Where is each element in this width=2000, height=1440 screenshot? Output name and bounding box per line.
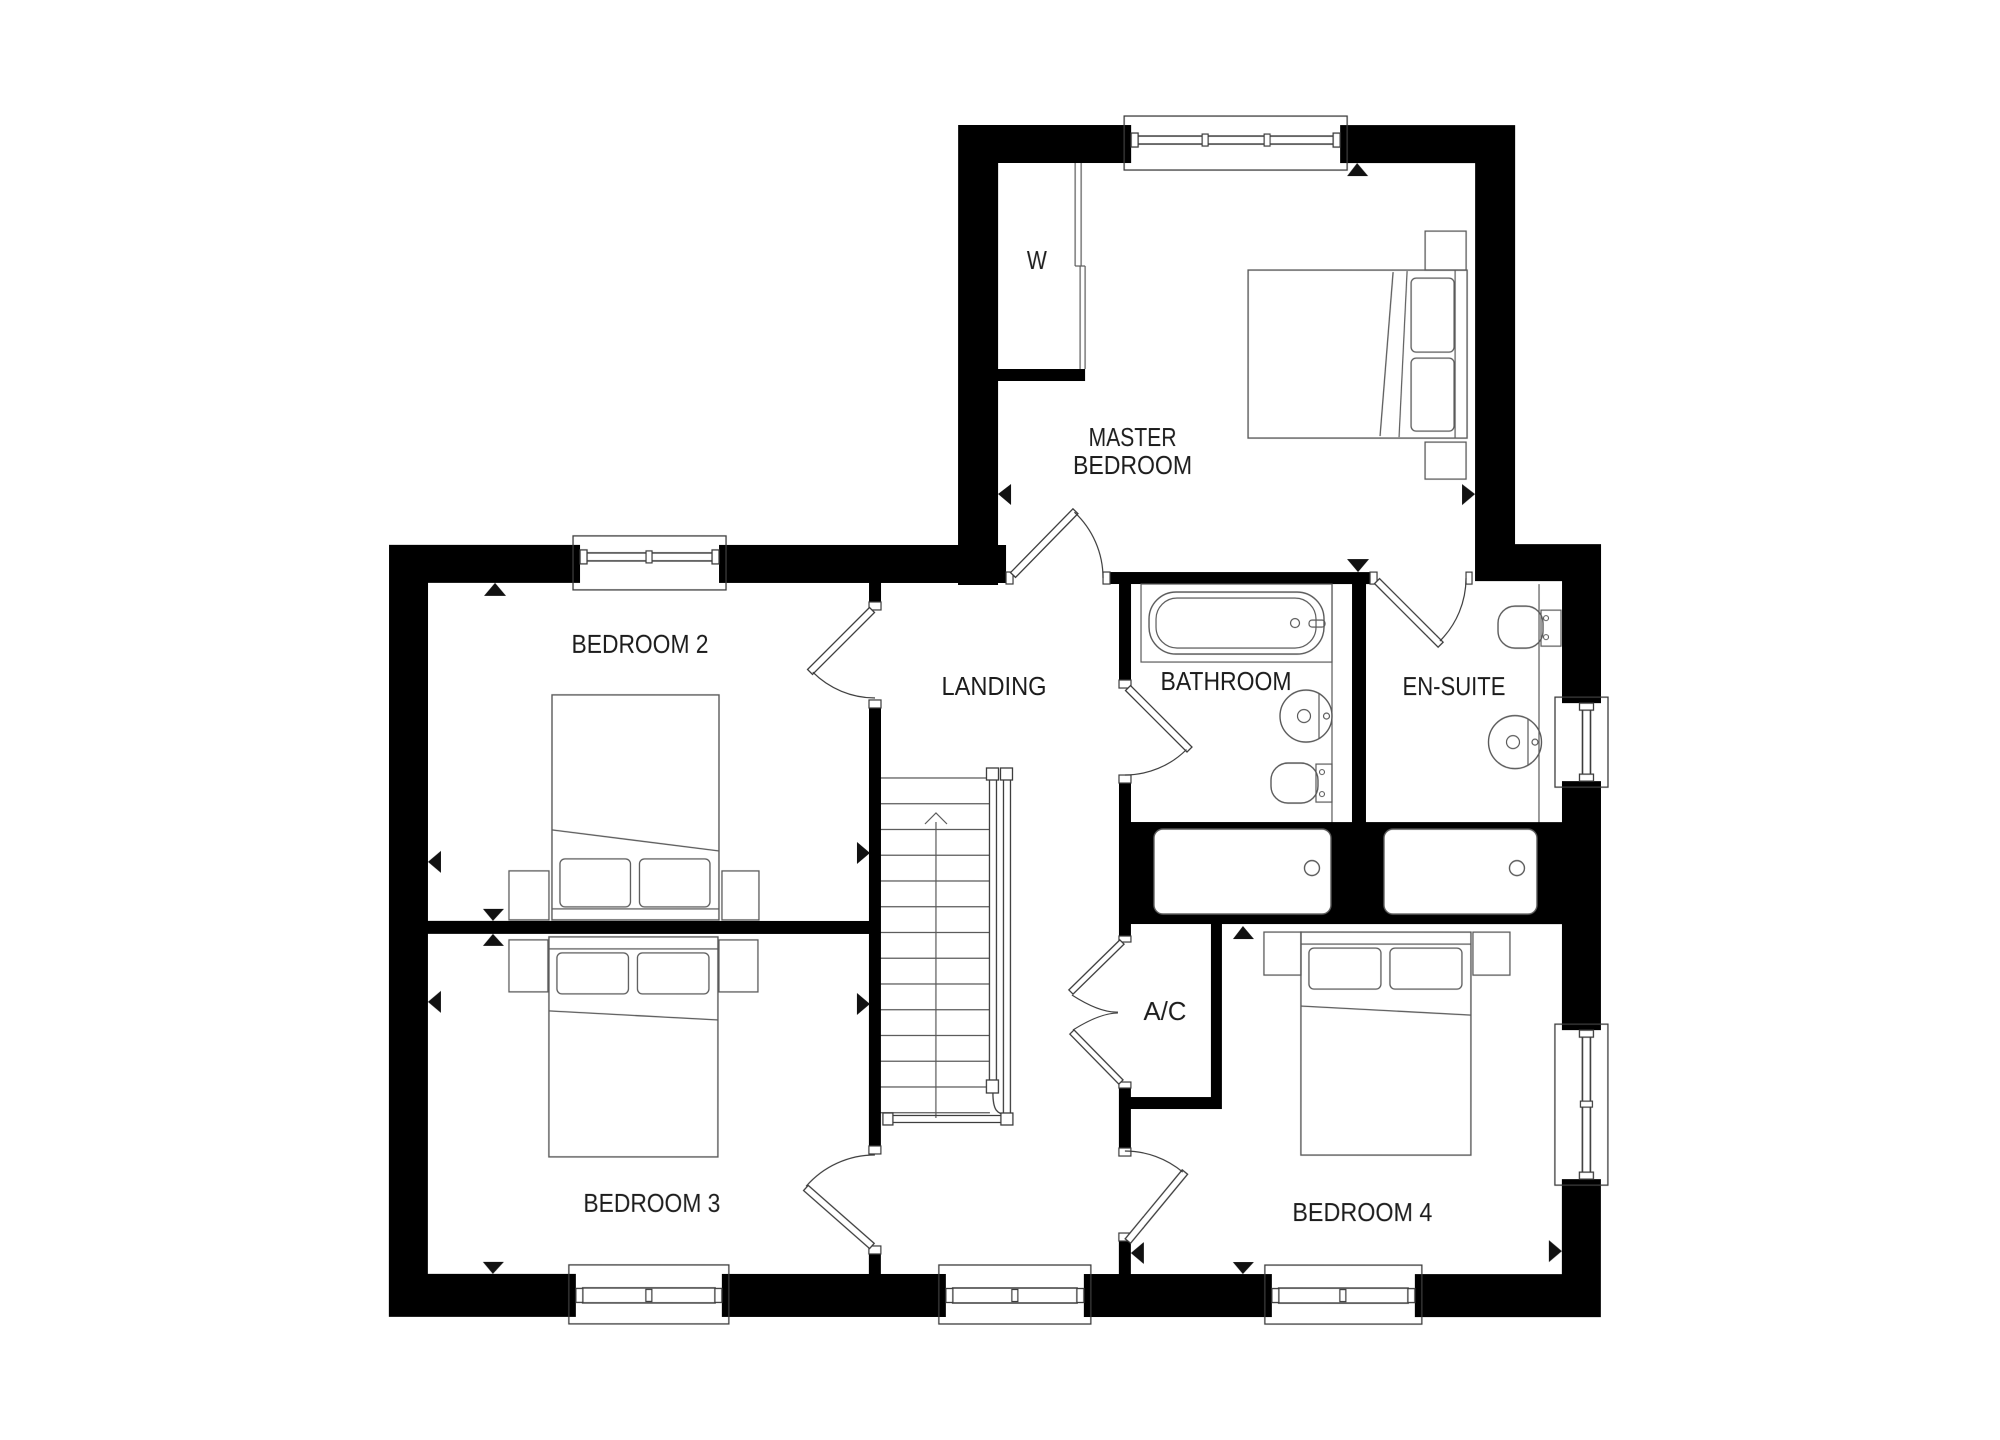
svg-text:BEDROOM 3: BEDROOM 3: [583, 1188, 720, 1218]
svg-text:MASTER: MASTER: [1089, 422, 1177, 452]
svg-text:BEDROOM 4: BEDROOM 4: [1292, 1197, 1432, 1227]
svg-text:LANDING: LANDING: [942, 671, 1047, 701]
svg-text:W: W: [1027, 245, 1047, 275]
svg-text:EN-SUITE: EN-SUITE: [1403, 671, 1506, 701]
svg-text:BEDROOM 2: BEDROOM 2: [572, 629, 709, 659]
svg-text:BATHROOM: BATHROOM: [1161, 666, 1292, 696]
svg-text:A/C: A/C: [1143, 996, 1186, 1026]
svg-text:BEDROOM: BEDROOM: [1073, 450, 1192, 480]
